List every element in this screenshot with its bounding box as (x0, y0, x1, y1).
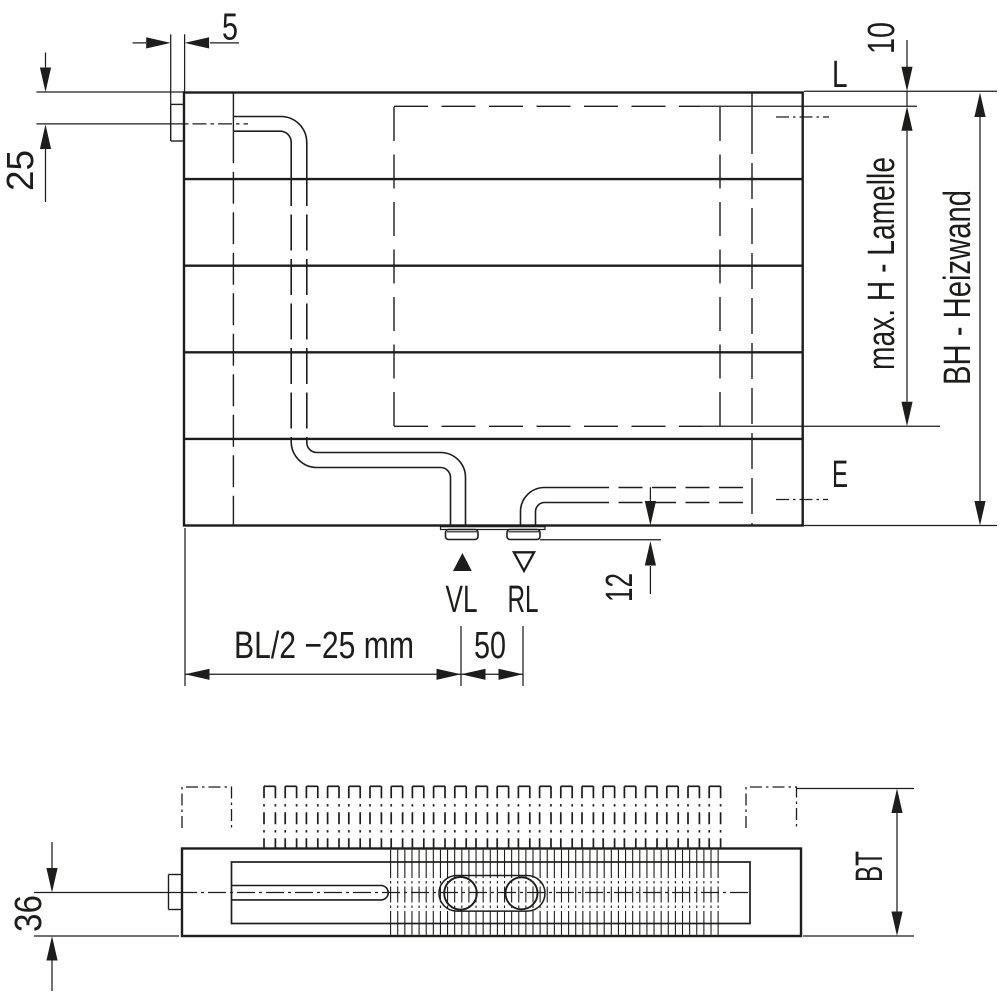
svg-text:10: 10 (861, 22, 903, 54)
svg-text:12: 12 (599, 573, 641, 602)
svg-text:L: L (832, 54, 848, 96)
svg-text:BL/2 −25 mm: BL/2 −25 mm (234, 625, 414, 667)
svg-text:VL: VL (446, 579, 478, 621)
svg-text:max. H - Lamelle: max. H - Lamelle (861, 157, 903, 370)
svg-text:BT: BT (849, 851, 891, 882)
svg-text:E: E (832, 454, 848, 496)
svg-text:50: 50 (474, 625, 506, 667)
svg-text:BH - Heizwand: BH - Heizwand (937, 190, 979, 385)
svg-text:5: 5 (222, 7, 238, 49)
svg-text:RL: RL (508, 579, 539, 621)
svg-text:36: 36 (8, 895, 50, 932)
svg-text:25: 25 (0, 150, 42, 191)
